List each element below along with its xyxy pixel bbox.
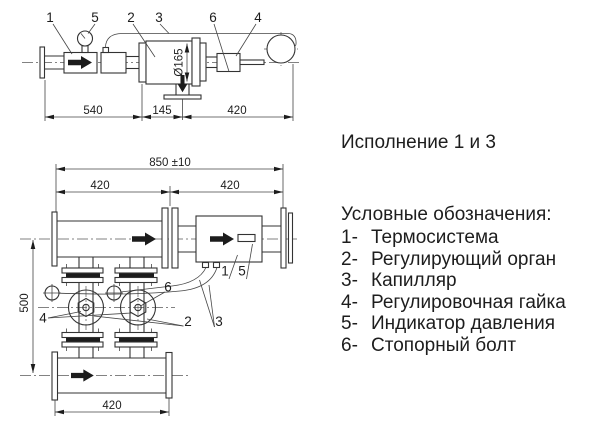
callout-3: 3 <box>215 314 223 329</box>
top-view-drawing: Ø165 <box>22 10 302 121</box>
dim-420-label: 420 <box>227 105 246 117</box>
adjusting-rod <box>240 60 264 65</box>
legend-item-number: 2- <box>341 249 371 271</box>
legend-item: 1- Термосистема <box>341 227 566 249</box>
adjusting-nut-end <box>267 35 295 63</box>
callout-2: 2 <box>127 10 135 25</box>
flange <box>115 342 157 347</box>
flange <box>62 333 103 338</box>
legend-item-label: Термосистема <box>371 227 499 249</box>
callout-2: 2 <box>184 314 192 329</box>
callout-4: 4 <box>39 311 47 326</box>
legend-item-number: 1- <box>341 227 371 249</box>
dim-420-left-label: 420 <box>90 180 109 192</box>
legend-item-number: 3- <box>341 270 371 292</box>
legend-item: 3- Капилляр <box>341 270 566 292</box>
legend-item-label: Индикатор давления <box>371 313 555 335</box>
callout-1: 1 <box>46 10 54 25</box>
pressure-indicator-window <box>238 235 255 242</box>
legend: Условные обозначения: 1- Термосистема 2-… <box>341 204 566 357</box>
execution-note: Исполнение 1 и 3 <box>341 132 496 154</box>
legend-item: 6- Стопорный болт <box>341 335 566 357</box>
legend-item-number: 6- <box>341 335 371 357</box>
bottom-view-drawing: 850 ±10 420 420 500 <box>19 157 300 416</box>
legend-item: 4- Регулировочная гайка <box>341 292 566 314</box>
flange <box>281 208 286 268</box>
flange <box>115 333 157 338</box>
dim-850-label: 850 ±10 <box>149 157 191 169</box>
flange <box>62 278 103 283</box>
callout-5: 5 <box>238 264 246 279</box>
flange <box>62 268 103 273</box>
legend-item: 2- Регулирующий орган <box>341 249 566 271</box>
legend-item-number: 4- <box>341 292 371 314</box>
dim-420-bottom-label: 420 <box>102 400 121 412</box>
flange <box>289 213 293 263</box>
legend-heading: Условные обозначения: <box>341 204 566 226</box>
callout-1: 1 <box>221 264 229 279</box>
callout-5: 5 <box>91 10 99 25</box>
callout-3: 3 <box>155 10 163 25</box>
thermosystem-body <box>64 53 97 74</box>
bottom-pipe-dimension: 420 <box>55 398 169 416</box>
bottom-view-top-dimensions: 850 ±10 420 420 <box>56 157 283 212</box>
legend-item-label: Регулировочная гайка <box>371 292 566 314</box>
flange <box>115 278 157 283</box>
regulating-organ-body <box>139 38 206 86</box>
flange <box>62 342 103 347</box>
flange <box>162 208 168 268</box>
capillary-fitting <box>203 263 209 268</box>
legend-item-label: Капилляр <box>371 270 457 292</box>
technical-drawing-page: Ø165 <box>0 0 600 442</box>
flange <box>115 268 157 273</box>
dim-diameter-label: Ø165 <box>174 48 186 76</box>
flange <box>172 208 178 268</box>
adjusting-assembly <box>206 32 298 72</box>
flange <box>166 353 172 399</box>
regulator-inlet-body <box>101 48 139 74</box>
flow-arrow-icon <box>71 369 94 381</box>
flow-arrow-icon <box>132 233 156 246</box>
lower-pipe-assembly <box>52 352 172 400</box>
legend-item-number: 5- <box>341 313 371 335</box>
pressure-gauge <box>78 31 93 53</box>
legend-item: 5- Индикатор давления <box>341 313 566 335</box>
height-dimension: 500 <box>19 240 35 373</box>
callout-6: 6 <box>209 10 217 25</box>
callout-6: 6 <box>164 280 172 295</box>
capillary-fitting <box>214 263 220 268</box>
dim-420-right-label: 420 <box>220 180 239 192</box>
upper-pipe-assembly <box>52 208 293 268</box>
dim-145-label: 145 <box>152 105 171 117</box>
dim-540-label: 540 <box>83 105 102 117</box>
legend-item-label: Стопорный болт <box>371 335 516 357</box>
flange <box>52 352 58 400</box>
callout-4: 4 <box>254 10 262 25</box>
dim-500-label: 500 <box>19 293 31 312</box>
legend-item-label: Регулирующий орган <box>371 249 556 271</box>
flange <box>52 212 57 266</box>
